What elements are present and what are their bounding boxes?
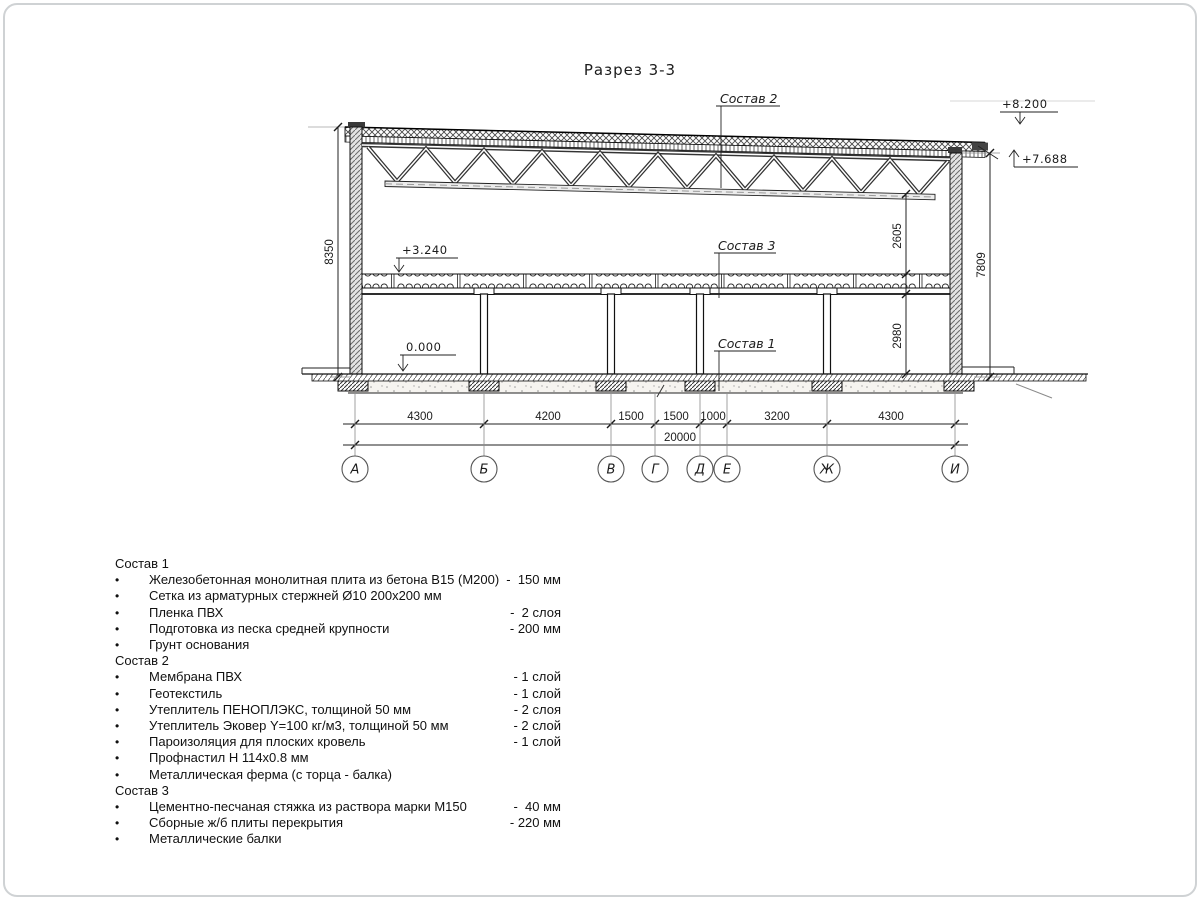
spec-item-text: Утеплитель Эковер Y=100 кг/м3, толщиной … (149, 718, 513, 734)
spec-item-qty: - 1 слой (513, 669, 561, 685)
axis-label: Ж (819, 463, 835, 478)
axis-label: Б (480, 463, 489, 478)
spec-item-text: Металлические балки (149, 831, 561, 847)
axis-label: Е (723, 463, 732, 478)
bullet-icon (115, 572, 149, 588)
spec-item-text: Грунт основания (149, 637, 561, 653)
dimension-left-height: 8350 (324, 123, 350, 381)
spec-item-text: Утеплитель ПЕНОПЛЭКС, толщиной 50 мм (149, 702, 514, 718)
spec-item-text: Сетка из арматурных стержней Ø10 200х200… (149, 588, 561, 604)
bullet-icon (115, 686, 149, 702)
bullet-icon (115, 605, 149, 621)
right-wall (950, 153, 962, 374)
spec-item-text: Геотекстиль (149, 686, 513, 702)
spec-item-qty: - 200 мм (510, 621, 561, 637)
left-apron (302, 368, 350, 374)
spec-item: Грунт основания (115, 637, 561, 653)
dim-segment: 4300 (878, 411, 904, 423)
left-wall (350, 127, 362, 374)
spec-item-text: Металлическая ферма (с торца - балка) (149, 767, 561, 783)
column (824, 294, 831, 374)
bullet-icon (115, 750, 149, 766)
spec-header: Состав 3 (115, 783, 561, 799)
dim-segment: 1500 (618, 411, 644, 423)
bullet-icon (115, 702, 149, 718)
dim-segment: 1500 (663, 411, 689, 423)
elevation-value: +8.200 (1002, 97, 1048, 111)
dim-segment: 3200 (764, 411, 790, 423)
bullet-icon (115, 734, 149, 750)
section-drawing: 8350 2605 2980 7809 +8.200 (0, 0, 1200, 520)
spec-item-qty: - 150 мм (506, 572, 561, 588)
leader-sostav3: Состав 3 (714, 238, 776, 298)
spec-item-text: Пленка ПВХ (149, 605, 510, 621)
elevation-value: 0.000 (406, 340, 441, 354)
spec-item-qty: - 2 слоя (510, 605, 561, 621)
axis-label: В (607, 463, 616, 478)
floor-structure (362, 274, 950, 374)
spec-item-text: Пароизоляция для плоских кровель (149, 734, 513, 750)
leader-label: Состав 2 (720, 91, 778, 106)
spec-item: Металлическая ферма (с торца - балка) (115, 767, 561, 783)
dim-segment: 4200 (535, 411, 561, 423)
spec-item-text: Железобетонная монолитная плита из бетон… (149, 572, 506, 588)
bullet-icon (115, 588, 149, 604)
spec-header: Состав 2 (115, 653, 561, 669)
spec-item-text: Профнастил Н 114х0.8 мм (149, 750, 561, 766)
spec-item-qty: - 220 мм (510, 815, 561, 831)
dimension-right-height: 7809 (962, 149, 1000, 381)
bullet-icon (115, 669, 149, 685)
ground-floor (302, 367, 1088, 398)
construction-guides (308, 101, 1095, 127)
roof-end-cap (972, 142, 988, 150)
dim-2980: 2980 (892, 323, 904, 349)
spec-item-qty: - 1 слой (513, 686, 561, 702)
dim-segment: 1000 (700, 411, 726, 423)
axis-grid: АБВГДЕЖИ (342, 394, 968, 482)
leader-label: Состав 1 (718, 336, 775, 351)
spec-item: Металлические балки (115, 831, 561, 847)
leader-label: Состав 3 (718, 238, 776, 253)
spec-item-text: Сборные ж/б плиты перекрытия (149, 815, 510, 831)
drawing-sheet: Разрез 3-3 (0, 0, 1200, 900)
bullet-icon (115, 621, 149, 637)
ground-slab (312, 374, 1086, 381)
bullet-icon (115, 799, 149, 815)
spec-item: Сетка из арматурных стержней Ø10 200х200… (115, 588, 561, 604)
spec-item: Пленка ПВХ- 2 слоя (115, 605, 561, 621)
dim-total: 20000 (664, 432, 696, 444)
dimension-bottom: 20000 4300420015001500100032004300 (343, 411, 968, 449)
dim-2605: 2605 (892, 223, 904, 249)
spec-item: Геотекстиль- 1 слой (115, 686, 561, 702)
bullet-icon (115, 767, 149, 783)
column (481, 294, 488, 374)
spec-item-qty: - 1 слой (513, 734, 561, 750)
spec-item-text: Цементно-песчаная стяжка из раствора мар… (149, 799, 514, 815)
spec-item: Железобетонная монолитная плита из бетон… (115, 572, 561, 588)
composition-notes: Состав 1Железобетонная монолитная плита … (115, 556, 561, 848)
column (608, 294, 615, 374)
spec-item: Утеплитель Эковер Y=100 кг/м3, толщиной … (115, 718, 561, 734)
dim-8350: 8350 (324, 239, 336, 265)
elevation-mark-floor2: +3.240 (394, 243, 458, 272)
spec-item-qty: - 40 мм (514, 799, 562, 815)
elevation-value: +3.240 (402, 243, 448, 257)
spec-item: Цементно-песчаная стяжка из раствора мар… (115, 799, 561, 815)
spec-item: Мембрана ПВХ- 1 слой (115, 669, 561, 685)
sand-bed (348, 381, 963, 393)
spec-item-qty: - 2 слой (513, 718, 561, 734)
spec-item-text: Мембрана ПВХ (149, 669, 513, 685)
spec-item: Пароизоляция для плоских кровель- 1 слой (115, 734, 561, 750)
axis-label: А (350, 463, 360, 478)
spec-header: Состав 1 (115, 556, 561, 572)
up-arrow-icon (1009, 150, 1019, 167)
down-arrow-icon (398, 355, 408, 371)
spec-item-qty: - 2 слоя (514, 702, 561, 718)
spec-item: Утеплитель ПЕНОПЛЭКС, толщиной 50 мм- 2 … (115, 702, 561, 718)
bullet-icon (115, 637, 149, 653)
dim-7809: 7809 (976, 252, 988, 278)
spec-item: Сборные ж/б плиты перекрытия- 220 мм (115, 815, 561, 831)
dim-segment: 4300 (407, 411, 433, 423)
column (697, 294, 704, 374)
hollow-core-slab (362, 274, 950, 288)
elevation-value: +7.688 (1022, 152, 1068, 166)
down-arrow-icon (1015, 112, 1025, 124)
down-arrow-icon (394, 258, 404, 272)
spec-item-text: Подготовка из песка средней крупности (149, 621, 510, 637)
right-bearing-plate (948, 147, 962, 153)
bullet-icon (115, 718, 149, 734)
bullet-icon (115, 831, 149, 847)
right-apron (962, 367, 1014, 374)
spec-item: Подготовка из песка средней крупности- 2… (115, 621, 561, 637)
bullet-icon (115, 815, 149, 831)
axis-label: Д (694, 463, 705, 478)
elevation-mark-ground: 0.000 (398, 340, 456, 371)
axis-label: И (950, 463, 960, 478)
spec-item: Профнастил Н 114х0.8 мм (115, 750, 561, 766)
